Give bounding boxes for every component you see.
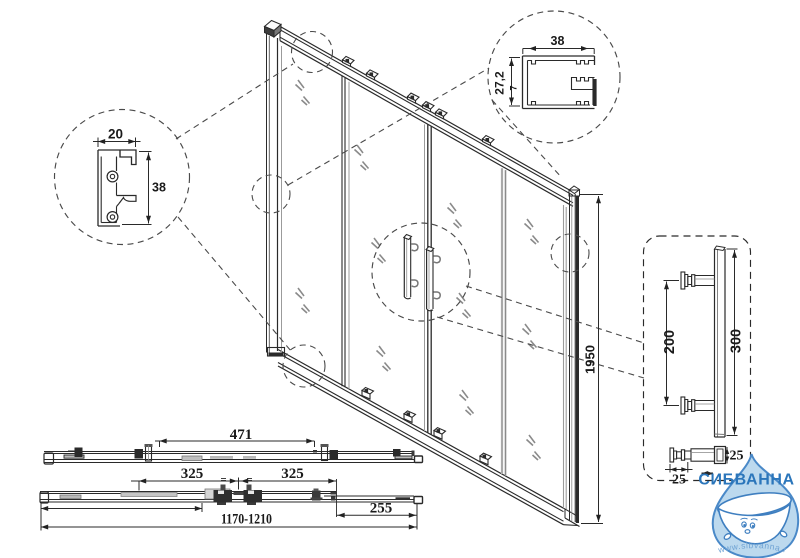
- svg-text:300: 300: [729, 329, 745, 353]
- svg-text:471: 471: [230, 427, 253, 443]
- svg-text:255: 255: [370, 501, 393, 517]
- svg-text:25: 25: [730, 449, 744, 464]
- svg-text:200: 200: [662, 330, 678, 354]
- svg-text:20: 20: [108, 127, 123, 142]
- svg-text:1170-1210: 1170-1210: [221, 512, 272, 528]
- svg-text:38: 38: [152, 181, 166, 195]
- svg-text:1950: 1950: [583, 345, 598, 374]
- svg-text:38: 38: [551, 34, 565, 48]
- svg-text:27,2: 27,2: [493, 71, 507, 95]
- svg-text:325: 325: [181, 466, 204, 482]
- svg-text:325: 325: [281, 466, 304, 482]
- svg-text:7: 7: [509, 85, 519, 90]
- svg-text:СИБВАННА: СИБВАННА: [698, 472, 794, 489]
- svg-text:25: 25: [672, 473, 686, 488]
